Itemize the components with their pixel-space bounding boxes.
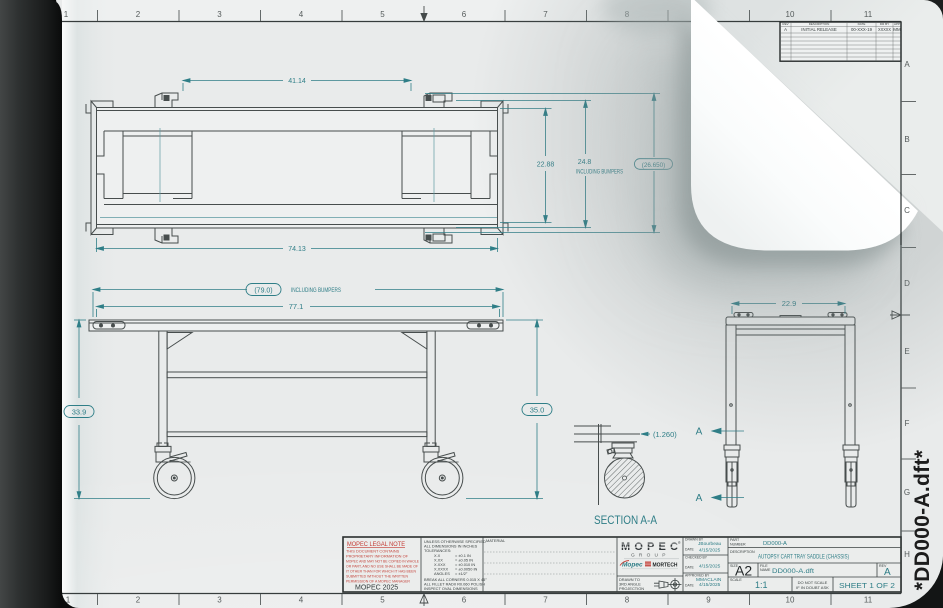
svg-text:4/15/2025: 4/15/2025	[699, 564, 721, 570]
svg-text:6: 6	[462, 596, 467, 605]
svg-text:DR BY: DR BY	[880, 22, 889, 26]
svg-text:APPROVED BY: APPROVED BY	[685, 574, 710, 578]
svg-text:SHEET 1 OF 2: SHEET 1 OF 2	[839, 581, 895, 590]
svg-text:5: 5	[380, 596, 385, 605]
svg-text:H: H	[904, 550, 910, 559]
svg-text:35.0: 35.0	[530, 406, 545, 415]
svg-text:MOPEC LEGAL NOTE: MOPEC LEGAL NOTE	[347, 541, 405, 548]
svg-text:10: 10	[786, 596, 795, 605]
svg-text:Mopec: Mopec	[622, 562, 643, 569]
svg-text:2: 2	[136, 596, 141, 605]
svg-text:GROUP: GROUP	[631, 553, 670, 559]
svg-text:SECTION A-A: SECTION A-A	[594, 513, 657, 527]
svg-text:MATERIAL: MATERIAL	[486, 538, 506, 543]
svg-text:A: A	[784, 27, 787, 32]
svg-text:G: G	[904, 488, 910, 497]
svg-text:XXXXX: XXXXX	[878, 27, 891, 32]
svg-text:3: 3	[217, 10, 222, 19]
svg-text:A: A	[696, 493, 703, 504]
svg-text:A: A	[884, 567, 891, 578]
svg-text:(1.260): (1.260)	[653, 430, 677, 439]
svg-text:11: 11	[864, 10, 873, 19]
svg-text:77.1: 77.1	[289, 302, 304, 311]
svg-text:1: 1	[64, 10, 69, 19]
svg-text:1:1: 1:1	[755, 580, 768, 590]
svg-text:DATE: DATE	[685, 584, 695, 588]
svg-text:*DD000-A.dft*: *DD000-A.dft*	[911, 449, 934, 590]
svg-text:33.9: 33.9	[72, 408, 87, 417]
svg-text:4/15/2025: 4/15/2025	[699, 548, 721, 554]
svg-text:DATE: DATE	[685, 566, 695, 570]
svg-text:AUTOPSY CART TRAY SADDLE (CHAS: AUTOPSY CART TRAY SADDLE (CHASSIS)	[758, 555, 849, 561]
svg-text:JBourbeau: JBourbeau	[698, 541, 722, 547]
svg-text:DD000-A: DD000-A	[763, 541, 787, 547]
svg-text:8: 8	[625, 596, 630, 605]
svg-text:INSPECT OVAL DIMENSIONS: INSPECT OVAL DIMENSIONS	[424, 586, 478, 591]
svg-text:PERMISSION OF A MOPEC MANAGER: PERMISSION OF A MOPEC MANAGER	[346, 579, 410, 584]
svg-text:A: A	[904, 60, 910, 69]
svg-text:74.13: 74.13	[288, 246, 306, 253]
svg-text:10: 10	[786, 10, 795, 19]
svg-text:SCALE: SCALE	[730, 578, 742, 582]
svg-text:C: C	[904, 206, 910, 215]
svg-text:2: 2	[136, 10, 141, 19]
svg-text:9: 9	[706, 596, 711, 605]
svg-text:MORTECH: MORTECH	[653, 563, 678, 569]
svg-text:6: 6	[462, 10, 467, 19]
svg-text:41.14: 41.14	[288, 78, 306, 85]
svg-text:4: 4	[299, 10, 304, 19]
svg-text:DATE: DATE	[858, 22, 866, 26]
svg-text:7: 7	[543, 596, 548, 605]
svg-text:= ±1/2°: = ±1/2°	[455, 571, 468, 576]
svg-text:PART: PART	[730, 538, 740, 542]
svg-text:®: ®	[678, 541, 681, 545]
svg-text:INCLUDING BUMPERS: INCLUDING BUMPERS	[291, 287, 341, 294]
svg-text:DESCRIPTION: DESCRIPTION	[730, 550, 755, 554]
svg-text:DESCRIPTION: DESCRIPTION	[809, 22, 830, 26]
svg-text:INITIAL RELEASE: INITIAL RELEASE	[801, 27, 837, 32]
svg-text:DRAWN BY: DRAWN BY	[685, 538, 704, 542]
svg-text:B: B	[904, 135, 909, 144]
svg-text:DD000-A.dft: DD000-A.dft	[772, 569, 814, 575]
svg-text:DATE: DATE	[685, 548, 695, 552]
svg-text:MM: MM	[893, 27, 901, 32]
svg-text:NUMBER: NUMBER	[730, 543, 746, 547]
svg-text:CHECKED BY: CHECKED BY	[685, 556, 708, 560]
svg-text:ANGLES: ANGLES	[434, 571, 450, 576]
svg-text:A2: A2	[735, 563, 752, 579]
svg-text:APP: APP	[894, 22, 900, 26]
svg-text:5: 5	[380, 10, 385, 19]
svg-text:3: 3	[217, 596, 222, 605]
svg-text:MOPEC 2025: MOPEC 2025	[355, 585, 398, 592]
svg-text:NAME: NAME	[760, 568, 771, 572]
svg-text:(79.0): (79.0)	[254, 288, 272, 295]
svg-text:4: 4	[299, 596, 304, 605]
svg-text:4/15/2025: 4/15/2025	[699, 582, 721, 588]
svg-text:00-XXX-19: 00-XXX-19	[851, 27, 873, 32]
svg-text:PROJECTION: PROJECTION	[619, 586, 644, 591]
svg-text:IF IN DOUBT ASK: IF IN DOUBT ASK	[796, 585, 829, 590]
svg-text:REV: REV	[782, 22, 788, 26]
svg-text:11: 11	[864, 596, 873, 605]
